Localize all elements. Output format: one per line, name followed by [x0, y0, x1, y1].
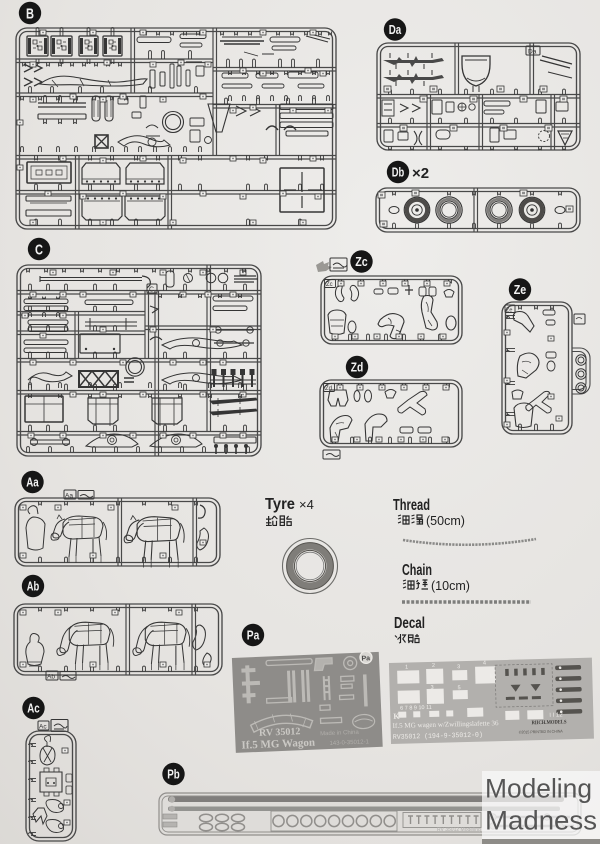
svg-text:×4: ×4	[299, 497, 314, 512]
svg-text:6 7 8 9 10 11: 6 7 8 9 10 11	[400, 705, 432, 712]
svg-text:2: 2	[432, 663, 435, 669]
svg-text:Zc: Zc	[326, 282, 333, 288]
svg-text:Modeling: Modeling	[485, 774, 592, 804]
svg-text:5: 5	[458, 685, 461, 691]
svg-text:Zd: Zd	[351, 360, 364, 375]
svg-text:4: 4	[483, 660, 486, 666]
svg-text:Zd: Zd	[325, 386, 332, 392]
svg-text:Db: Db	[392, 165, 405, 180]
svg-text:Thread: Thread	[393, 497, 430, 514]
svg-text:3: 3	[431, 685, 434, 691]
svg-text:Da: Da	[389, 22, 402, 37]
svg-text:(50cm): (50cm)	[426, 514, 465, 528]
svg-text:Ac: Ac	[27, 701, 40, 716]
svg-text:C: C	[149, 287, 154, 294]
svg-text:(10cm): (10cm)	[431, 579, 470, 593]
svg-text:Ze: Ze	[514, 282, 527, 297]
svg-text:Pa: Pa	[361, 655, 370, 662]
svg-text:Pa: Pa	[247, 628, 260, 643]
svg-text:RV 35012 Modeling: RV 35012 Modeling	[437, 827, 481, 833]
svg-text:Chain: Chain	[402, 562, 432, 579]
svg-text:1: 1	[405, 665, 408, 671]
svg-text:RIICH.MODELS: RIICH.MODELS	[531, 719, 566, 726]
svg-text:Aa: Aa	[26, 475, 39, 490]
svg-text:Ac: Ac	[39, 724, 47, 731]
svg-text:Madness: Madness	[485, 806, 597, 836]
svg-text:3: 3	[457, 664, 460, 670]
svg-text:C: C	[35, 241, 43, 258]
svg-text:Decal: Decal	[394, 615, 425, 632]
svg-text:Tyre: Tyre	[265, 496, 295, 513]
svg-text:Ab: Ab	[47, 674, 55, 681]
svg-text:Da: Da	[528, 49, 537, 56]
svg-text:Ze: Ze	[506, 308, 512, 314]
svg-text:Pb: Pb	[167, 767, 180, 782]
svg-text:B: B	[26, 5, 34, 22]
svg-text:K: K	[393, 712, 400, 721]
svg-text:×2: ×2	[412, 165, 429, 182]
svg-text:I I 12: I I 12	[549, 712, 563, 718]
svg-text:Ab: Ab	[27, 579, 40, 594]
svg-text:Zc: Zc	[355, 254, 368, 269]
